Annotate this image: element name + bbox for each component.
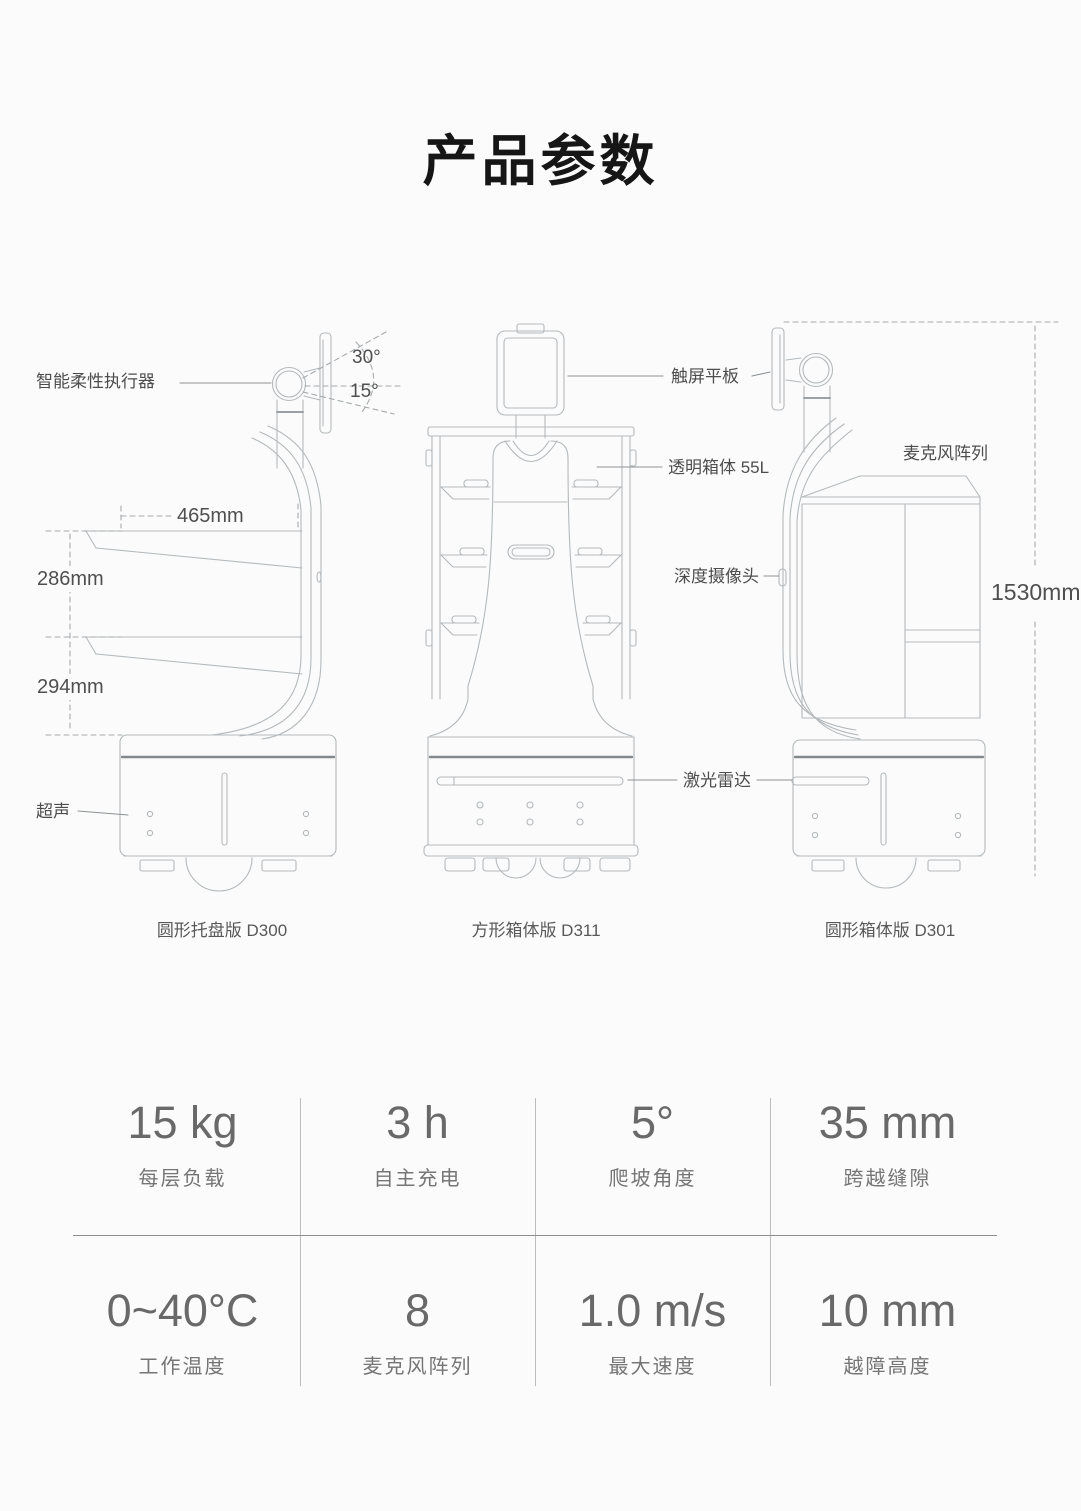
spec-divider-horizontal [73,1235,997,1236]
spec-obstacle-height: 10 mm 越障高度 [770,1283,1005,1379]
spec-label: 每层负载 [65,1162,300,1191]
spec-value: 0~40°C [65,1283,300,1339]
spec-value: 1.0 m/s [535,1283,770,1339]
caption-square-box-d311: 方形箱体版 D311 [471,916,600,941]
spec-grid: 15 kg 每层负载 3 h 自主充电 5° 爬坡角度 35 mm 跨越缝隙 0… [65,1095,1005,1391]
spec-label: 爬坡角度 [535,1162,770,1191]
label-ultrasonic: 超声 [36,802,70,822]
leader-lines [78,372,792,815]
spec-gap-crossing: 35 mm 跨越缝隙 [770,1095,1005,1191]
label-smart-flexible-actuator: 智能柔性执行器 [36,372,155,392]
robot-d311-drawing [424,324,638,878]
product-spec-sheet: 产品参数 [0,0,1081,1511]
spec-payload: 15 kg 每层负载 [65,1095,300,1191]
label-width-465mm: 465mm [177,504,244,528]
label-height-1530mm: 1530mm [991,579,1080,607]
spec-label: 越障高度 [770,1350,1005,1379]
spec-value: 3 h [300,1095,535,1151]
label-angle-30: 30° [352,347,381,370]
label-transparent-box-55l: 透明箱体 55L [668,458,769,478]
spec-climb-angle: 5° 爬坡角度 [535,1095,770,1191]
label-mic-array: 麦克风阵列 [903,444,988,464]
spec-max-speed: 1.0 m/s 最大速度 [535,1283,770,1379]
spec-label: 跨越缝隙 [770,1162,1005,1191]
spec-row-1: 15 kg 每层负载 3 h 自主充电 5° 爬坡角度 35 mm 跨越缝隙 [65,1095,1005,1191]
robot-line-drawings [0,0,1081,1000]
label-angle-15: 15° [350,381,379,404]
spec-row-2: 0~40°C 工作温度 8 麦克风阵列 1.0 m/s 最大速度 10 mm 越… [65,1283,1005,1379]
spec-charging: 3 h 自主充电 [300,1095,535,1191]
spec-label: 自主充电 [300,1162,535,1191]
robot-d301-drawing [772,328,985,888]
spec-value: 8 [300,1283,535,1339]
dimension-lines [46,322,1058,876]
spec-label: 工作温度 [65,1350,300,1379]
robot-d300-drawing [86,333,336,891]
label-touchscreen-tablet: 触屏平板 [671,367,739,387]
spec-label: 麦克风阵列 [300,1350,535,1379]
label-gap-294mm: 294mm [34,674,107,700]
caption-round-box-d301: 圆形箱体版 D301 [825,916,955,941]
caption-round-tray-d300: 圆形托盘版 D300 [157,916,287,941]
spec-value: 15 kg [65,1095,300,1151]
spec-working-temp: 0~40°C 工作温度 [65,1283,300,1379]
label-gap-286mm: 286mm [34,566,107,592]
spec-value: 5° [535,1095,770,1151]
label-lidar: 激光雷达 [683,771,751,791]
spec-value: 10 mm [770,1283,1005,1339]
spec-label: 最大速度 [535,1350,770,1379]
spec-mic-array-count: 8 麦克风阵列 [300,1283,535,1379]
spec-value: 35 mm [770,1095,1005,1151]
label-depth-camera: 深度摄像头 [674,567,759,587]
